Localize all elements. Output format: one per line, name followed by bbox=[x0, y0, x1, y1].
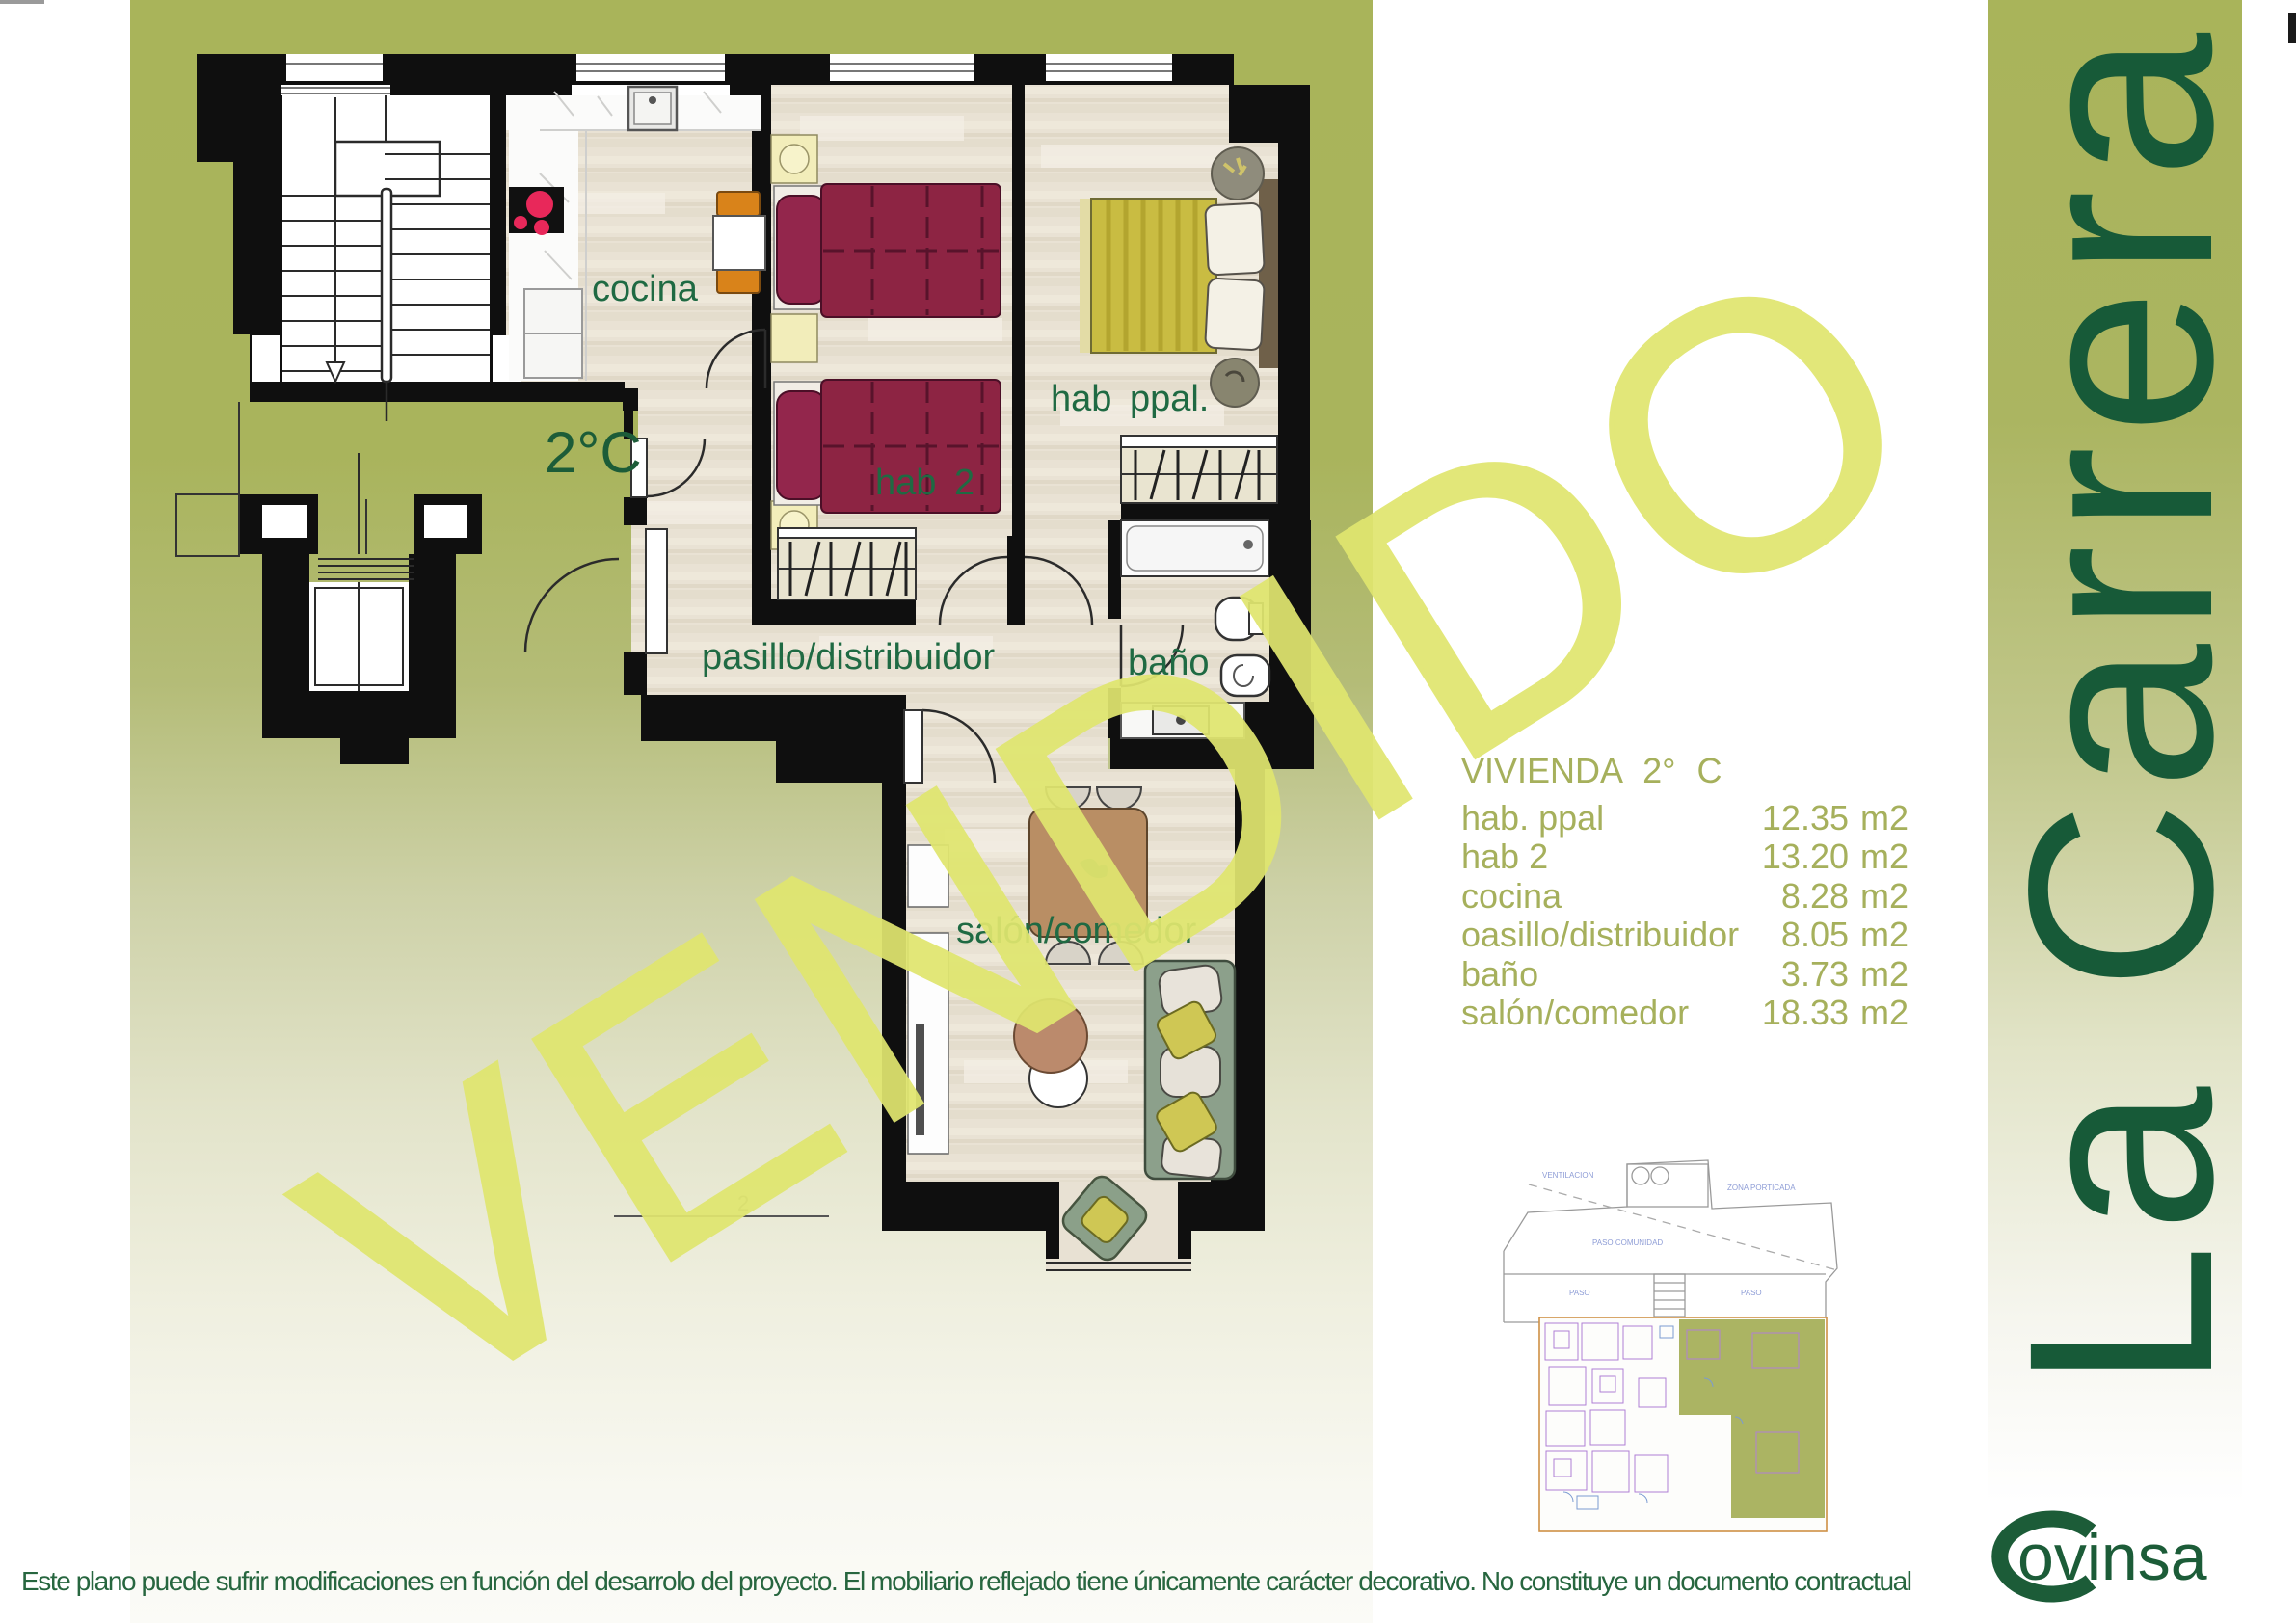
svg-text:PASO: PASO bbox=[1569, 1289, 1590, 1297]
svg-text:2°C: 2°C bbox=[545, 420, 642, 485]
svg-text:m2: m2 bbox=[1860, 954, 1909, 994]
svg-text:18.33: 18.33 bbox=[1762, 993, 1849, 1032]
svg-text:cocina: cocina bbox=[592, 269, 699, 309]
svg-text:13.20: 13.20 bbox=[1762, 837, 1849, 876]
svg-text:hab 2: hab 2 bbox=[1461, 837, 1548, 876]
svg-text:hab 2: hab 2 bbox=[875, 463, 974, 503]
svg-text:ZONA PORTICADA: ZONA PORTICADA bbox=[1727, 1184, 1796, 1192]
svg-text:salón/comedor: salón/comedor bbox=[1461, 993, 1689, 1032]
svg-text:m2: m2 bbox=[1860, 876, 1909, 916]
svg-text:m2: m2 bbox=[1860, 837, 1909, 876]
svg-text:PASO COMUNIDAD: PASO COMUNIDAD bbox=[1592, 1238, 1663, 1247]
svg-text:8.05: 8.05 bbox=[1781, 915, 1849, 954]
svg-text:cocina: cocina bbox=[1461, 876, 1562, 916]
svg-text:oasillo/distribuidor: oasillo/distribuidor bbox=[1461, 915, 1739, 954]
svg-text:m2: m2 bbox=[1860, 993, 1909, 1032]
svg-text:3.73: 3.73 bbox=[1781, 954, 1849, 994]
svg-text:8.28: 8.28 bbox=[1781, 876, 1849, 916]
svg-text:m2: m2 bbox=[1860, 798, 1909, 838]
svg-text:VENTILACION: VENTILACION bbox=[1542, 1171, 1594, 1180]
svg-text:VIVIENDA 2° C: VIVIENDA 2° C bbox=[1461, 751, 1722, 790]
svg-text:PASO: PASO bbox=[1741, 1289, 1762, 1297]
svg-text:La Carrera: La Carrera bbox=[1974, 21, 2267, 1390]
svg-text:baño: baño bbox=[1461, 954, 1538, 994]
svg-text:m2: m2 bbox=[1860, 915, 1909, 954]
svg-text:hab ppal.: hab ppal. bbox=[1051, 379, 1209, 419]
svg-text:Este plano puede sufrir modifi: Este plano puede sufrir modificaciones e… bbox=[21, 1566, 1912, 1596]
svg-text:ovinsa: ovinsa bbox=[2017, 1521, 2207, 1594]
svg-text:hab. ppal: hab. ppal bbox=[1461, 798, 1604, 838]
svg-text:pasillo/distribuidor: pasillo/distribuidor bbox=[702, 637, 995, 678]
svg-text:12.35: 12.35 bbox=[1762, 798, 1849, 838]
